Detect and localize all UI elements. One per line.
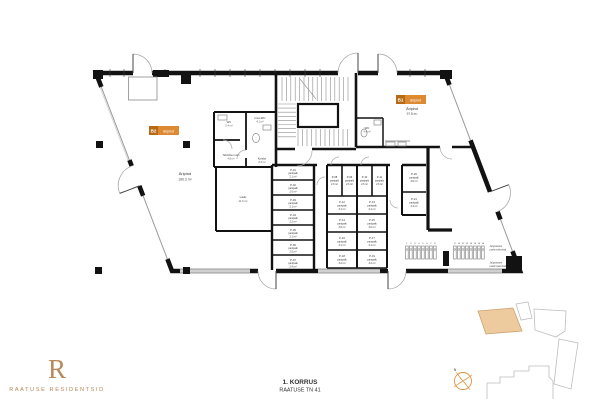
bike-rack-wheel: [426, 249, 428, 251]
storage-cell-area: 2.1 m²: [289, 206, 296, 209]
bike-rack-slot: [434, 246, 437, 259]
bike-slot-number: 5: [422, 243, 424, 245]
storage-cell-area: 2.0 m²: [289, 191, 296, 194]
sheet-title-floor: 1. KORRUS: [283, 379, 319, 386]
bike-rack-wheel: [466, 249, 468, 251]
bike-label-bottom-1: Jalgrataste: [490, 261, 503, 265]
storage-cell-area: 3.1 m²: [368, 244, 375, 247]
storage-cell-id: P-15: [369, 218, 375, 222]
storage-cell-area: 3.0 m²: [338, 226, 345, 229]
bike-rack-slot: [478, 246, 481, 259]
storage-cell-id: P-13: [369, 200, 375, 204]
site-building: [534, 309, 566, 337]
wall-pier: [181, 74, 191, 84]
unit-tag-b1: B1 äripind: [396, 95, 426, 104]
storage-cell-id: P-11: [377, 175, 383, 179]
storage-cell-id: P-17: [369, 236, 375, 240]
storage-cell-area: 3.1 m²: [338, 208, 345, 211]
bike-slot-number: 10: [458, 243, 461, 245]
bike-slot-number: 6: [426, 243, 428, 245]
bike-rack-wheel: [478, 249, 480, 251]
bike-area-labels: Jalgrataste parkimiskohad Jalgrataste pa…: [490, 244, 507, 268]
bike-slot-number: 2: [410, 243, 412, 245]
storage-cell-area: 3.1 m²: [368, 208, 375, 211]
bike-slot-number: 8: [434, 243, 436, 245]
bike-rack-wheel: [470, 249, 472, 251]
storage-cell-area: 3.2 m²: [338, 262, 345, 265]
entrance-vestibule: [129, 77, 158, 100]
bike-slot-number: 11: [462, 243, 465, 245]
compass-icon: N: [454, 368, 472, 390]
bike-rack-wheel: [462, 249, 464, 251]
room-area-wc1: 2.4 m²: [225, 124, 232, 128]
bike-rack-wheel: [482, 249, 484, 251]
storage-cell-id: P-03: [290, 198, 296, 202]
brand-name: RAATUSE RESIDENTSID: [9, 387, 105, 393]
bike-rack-wheel: [422, 249, 424, 251]
storage-cell-id: P-10: [362, 175, 368, 179]
room-area-tech: 4.8 m²: [227, 157, 234, 160]
unit-b1-door-arc: [378, 54, 397, 73]
bike-slot-number: 13: [470, 243, 473, 245]
bike-slot-number: 1: [406, 243, 408, 245]
storage-cell-id: P-02: [290, 183, 296, 187]
brand-logo: R RAATUSE RESIDENTSID: [9, 354, 105, 393]
storage-cell-area: 3.0 m²: [368, 226, 375, 229]
bike-slot-number: 9: [454, 243, 456, 245]
bike-rack-slot: [458, 246, 461, 259]
bike-label-bottom-2: parkimiskohad: [490, 264, 507, 268]
site-building: [554, 339, 578, 389]
room-area-aripind-b1: 97.8 m²: [407, 112, 418, 116]
site-key-plan: [478, 302, 578, 399]
storage-cell-id: P-19: [369, 254, 375, 258]
room-area-b1wc: 4.4 m²: [363, 130, 370, 134]
storage-cell-id: P-16: [339, 236, 345, 240]
bike-rack-wheel: [418, 249, 420, 251]
sheet-title-address: RAATUSE TN 41: [279, 388, 320, 394]
bike-rack-wheel: [430, 249, 432, 251]
storage-cell-id: P-12: [339, 200, 345, 204]
main-entrance-door-arc: [133, 54, 152, 73]
wall-pier: [443, 251, 449, 266]
storage-cell-id: P-20: [411, 172, 417, 176]
bike-rack-slot: [430, 246, 433, 259]
bike-rack-wheel: [454, 249, 456, 251]
storage-cell-area: 2.2 m²: [289, 221, 296, 224]
bike-label-top-2: parkimiskohad: [490, 247, 507, 251]
room-label-corridor: Koridor: [258, 157, 266, 161]
bike-slot-number: 15: [478, 243, 481, 245]
bike-slot-number: 4: [418, 243, 420, 245]
storage-cell-id: P-07: [290, 258, 296, 262]
bike-rack-slot: [406, 246, 409, 259]
bike-rack-slot: [410, 246, 413, 259]
bike-slot-number: 14: [474, 243, 477, 245]
bike-rack-slot: [418, 246, 421, 259]
entrance-door-arc-bottom-1: [258, 271, 276, 289]
bike-slot-number: 16: [482, 243, 485, 245]
bike-rack-slot: [470, 246, 473, 259]
bike-slot-number: 7: [430, 243, 432, 245]
room-label-aripind-b1: Äripind: [406, 107, 418, 111]
floor-plan-sheet: B2 äripind B1 äripind Äripind 186.3 m² Ä…: [0, 0, 600, 400]
bike-rack-wheel: [406, 249, 408, 251]
storage-cell-id: P-08: [332, 175, 338, 179]
storage-cell-id: P-04: [290, 213, 296, 217]
unit-tag-b2-label: äripind: [163, 129, 174, 133]
unit-tag-b1-label: äripind: [410, 98, 421, 102]
room-label-wc2: Inva-WC: [255, 116, 266, 120]
bike-rack-slot: [482, 246, 485, 259]
unit-tag-b1-code: B1: [398, 98, 404, 103]
room-label-b1wc: WC: [365, 126, 370, 130]
storage-cell-area: 2.0 m²: [289, 251, 296, 254]
canopy-columns: [95, 141, 190, 274]
unit-tag-b2-code: B2: [151, 129, 157, 134]
storage-cell-id: P-01: [290, 168, 296, 172]
storage-cell-id: P-09: [347, 175, 353, 179]
bike-slot-number: 12: [466, 243, 469, 245]
stairwell: [278, 77, 348, 146]
storage-cell-id: P-18: [339, 254, 345, 258]
unit-tag-b2: B2 äripind: [149, 126, 179, 135]
storage-cell-id: P-14: [339, 218, 345, 222]
storage-cell-area: 2.4 m²: [289, 266, 296, 269]
storage-cell-area: 2.6 m²: [331, 183, 338, 186]
bike-rack-wheel: [474, 249, 476, 251]
storage-cell-area: 3.4 m²: [410, 205, 417, 208]
storage-cells: P-01panipaik2.1 m²P-02panipaik2.0 m²P-03…: [272, 168, 419, 269]
title-block: 1. KORRUS RAATUSE TN 41: [279, 379, 320, 394]
bike-rack-slot: [426, 246, 429, 259]
room-label-aripind-b2: Äripind: [179, 171, 191, 176]
room-area-aripind-b2: 186.3 m²: [178, 178, 192, 182]
bike-slot-number: 3: [414, 243, 416, 245]
entrance-door-arc-bottom-2: [388, 271, 406, 289]
bike-label-top-1: Jalgrataste: [490, 244, 503, 248]
storage-cell-area: 2.6 m²: [376, 183, 383, 186]
storage-cell-id: P-05: [290, 228, 296, 232]
storage-cell-id: P-06: [290, 243, 296, 247]
bike-rack-slot: [422, 246, 425, 259]
stair-entrance-door-arc: [338, 53, 358, 73]
room-area-corridor: 8.3 m²: [258, 161, 265, 164]
site-highlighted-building: [478, 308, 522, 334]
storage-cell-area: 2.6 m²: [361, 183, 368, 186]
bike-rack-slot: [462, 246, 465, 259]
storage-cell-id: P-21: [411, 197, 417, 201]
bike-rack-wheel: [458, 249, 460, 251]
room-label-ladu: Ladu: [240, 195, 247, 199]
elevator-shaft: [298, 104, 338, 127]
bike-rack-slot: [454, 246, 457, 259]
brand-monogram: R: [48, 354, 66, 384]
storage-cell-area: 3.2 m²: [368, 262, 375, 265]
bike-rack-wheel: [434, 249, 436, 251]
storage-cell-area: 3.6 m²: [410, 180, 417, 183]
storage-cell-area: 2.6 m²: [346, 183, 353, 186]
floor-plan: B2 äripind B1 äripind Äripind 186.3 m² Ä…: [93, 53, 522, 289]
compass-north-label: N: [454, 368, 457, 372]
bike-rack-slot: [466, 246, 469, 259]
room-area-ladu: 11.6 m²: [239, 199, 248, 203]
storage-cell-area: 3.1 m²: [338, 244, 345, 247]
bike-rack-wheel: [410, 249, 412, 251]
bike-rack-wheel: [414, 249, 416, 251]
site-building: [516, 302, 532, 320]
room-label-tech: Tehniline ruum: [223, 153, 240, 157]
site-building: [487, 366, 553, 399]
bike-rack-slot: [414, 246, 417, 259]
room-label-wc1: WC: [227, 120, 232, 124]
storage-cell-area: 2.1 m²: [289, 176, 296, 179]
storage-cell-area: 2.1 m²: [289, 236, 296, 239]
room-area-wc2: 4.1 m²: [256, 120, 263, 124]
bike-rack-slot: [474, 246, 477, 259]
